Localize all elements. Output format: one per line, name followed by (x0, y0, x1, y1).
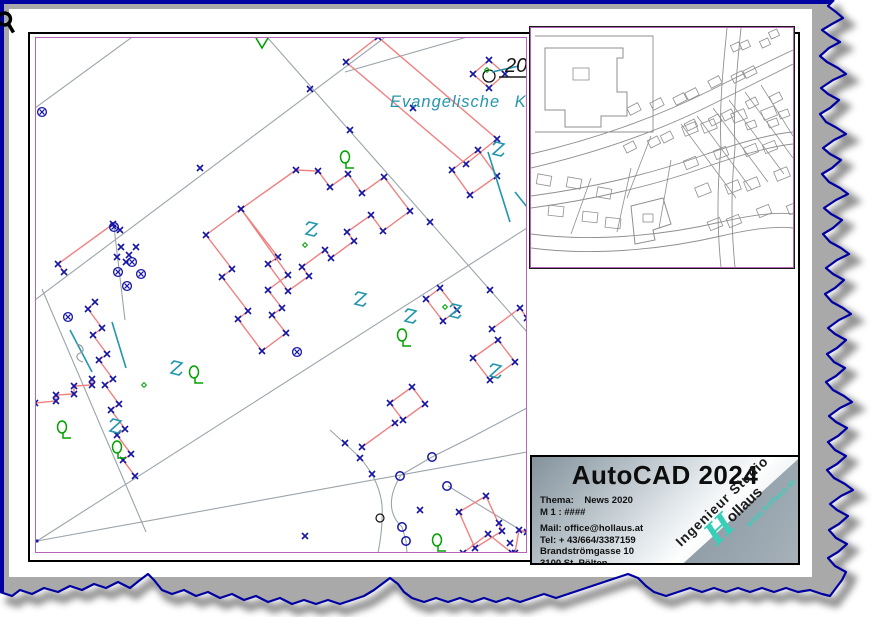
overview-map-drawing (531, 28, 793, 267)
info-line-thema: Thema: News 2020 (540, 495, 643, 507)
house-number-label: 20 (504, 55, 526, 77)
overview-map-viewport[interactable] (529, 26, 795, 269)
zoom-cursor-icon (0, 6, 18, 36)
info-line-tel1: Tel: + 43/664/3387159 (540, 535, 643, 547)
left-border (0, 0, 4, 596)
info-line-city: 3100 St. Pölten (540, 558, 643, 566)
overview-map-border (530, 27, 794, 268)
church-label: Evangelische Kirche (390, 93, 526, 111)
info-line-scale: M 1 : #### (540, 507, 643, 519)
title-block: AutoCAD 2024 Thema: News 2020 M 1 : ####… (530, 455, 800, 565)
main-plan-viewport[interactable]: Evangelische Kirche 20 (35, 37, 527, 553)
info-line-street: Brandströmgasse 10 (540, 546, 643, 558)
screenshot-canvas: Evangelische Kirche 20 AutoCAD 2024 Them… (0, 0, 874, 617)
top-border (0, 0, 874, 4)
info-line-mail: Mail: office@hollaus.at (540, 523, 643, 535)
site-plan-drawing: Evangelische Kirche 20 (36, 38, 526, 552)
title-block-info: Thema: News 2020 M 1 : #### Mail: office… (540, 495, 643, 565)
